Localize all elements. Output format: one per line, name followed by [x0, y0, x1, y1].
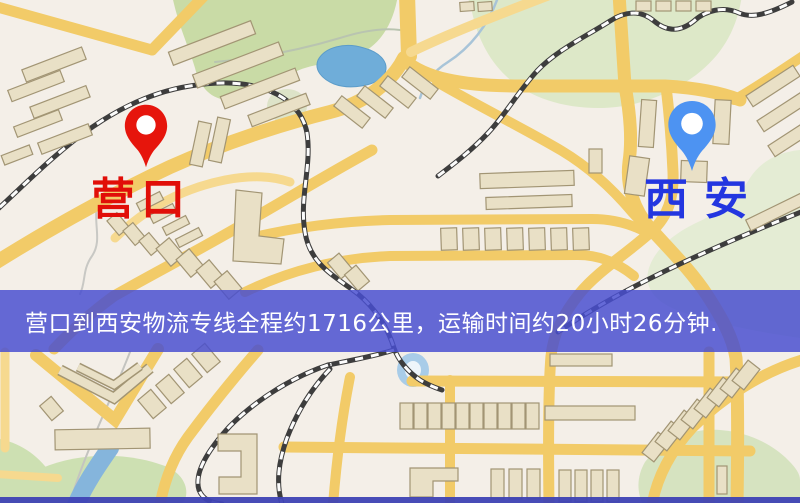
map-view[interactable]: 营口 西安 营口到西安物流专线全程约1716公里，运输时间约20小时26分钟.	[0, 0, 800, 503]
origin-pin-hole	[136, 115, 155, 134]
bottom-border	[0, 497, 800, 503]
map-canvas	[0, 0, 800, 503]
destination-pin-hole	[681, 113, 703, 135]
origin-pin-shape	[125, 105, 167, 168]
origin-pin-icon[interactable]	[123, 102, 169, 170]
route-info-banner: 营口到西安物流专线全程约1716公里，运输时间约20小时26分钟.	[0, 290, 800, 352]
destination-city-label: 西安	[644, 178, 764, 222]
route-info-text: 营口到西安物流专线全程约1716公里，运输时间约20小时26分钟.	[25, 304, 718, 338]
origin-city-label: 营口	[91, 178, 191, 222]
destination-pin-icon[interactable]	[666, 100, 718, 172]
destination-pin-shape	[668, 101, 715, 171]
